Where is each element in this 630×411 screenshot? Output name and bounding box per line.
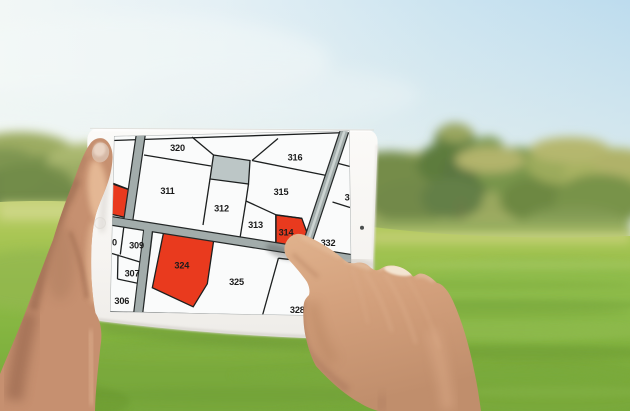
svg-text:325: 325 — [229, 277, 244, 287]
svg-text:0: 0 — [112, 237, 117, 247]
svg-text:328: 328 — [290, 305, 305, 315]
svg-text:324: 324 — [174, 260, 190, 270]
svg-text:316: 316 — [288, 153, 303, 163]
svg-text:306: 306 — [114, 296, 129, 306]
svg-text:307: 307 — [125, 268, 140, 278]
svg-text:311: 311 — [160, 186, 174, 196]
svg-text:313: 313 — [248, 220, 263, 230]
svg-text:320: 320 — [170, 143, 185, 153]
svg-text:309: 309 — [129, 241, 144, 251]
svg-text:312: 312 — [214, 204, 229, 214]
svg-text:315: 315 — [274, 187, 289, 197]
